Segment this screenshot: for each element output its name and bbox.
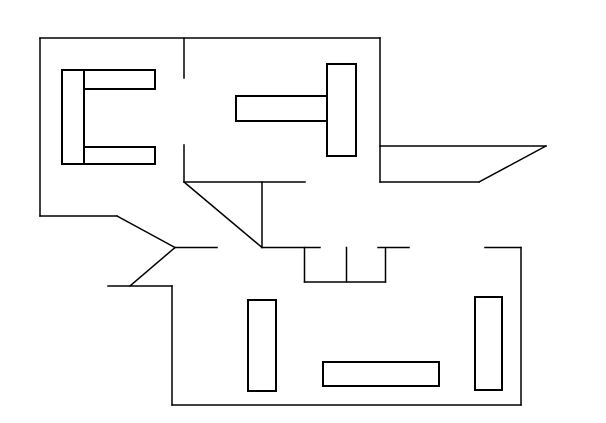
sofa-back-upper-left-room [62, 70, 84, 164]
floor-plan-canvas [0, 0, 606, 423]
sofa-arm-top [84, 70, 155, 89]
stair-diagonal [184, 182, 262, 248]
shelf-lower-left [248, 300, 276, 391]
cabinet-middle-room [327, 64, 356, 156]
entry-diagonal-lower [130, 248, 175, 287]
entry-diagonal-upper [117, 216, 175, 248]
table-lower-room [323, 362, 439, 386]
table-middle-room [236, 96, 327, 121]
sofa-arm-bottom [84, 147, 155, 164]
terrace-diagonal-edge [479, 146, 546, 182]
walls-group [40, 38, 546, 405]
floor-plan-page [0, 0, 606, 423]
cabinet-lower-right [475, 297, 502, 390]
furniture-group [62, 64, 502, 391]
